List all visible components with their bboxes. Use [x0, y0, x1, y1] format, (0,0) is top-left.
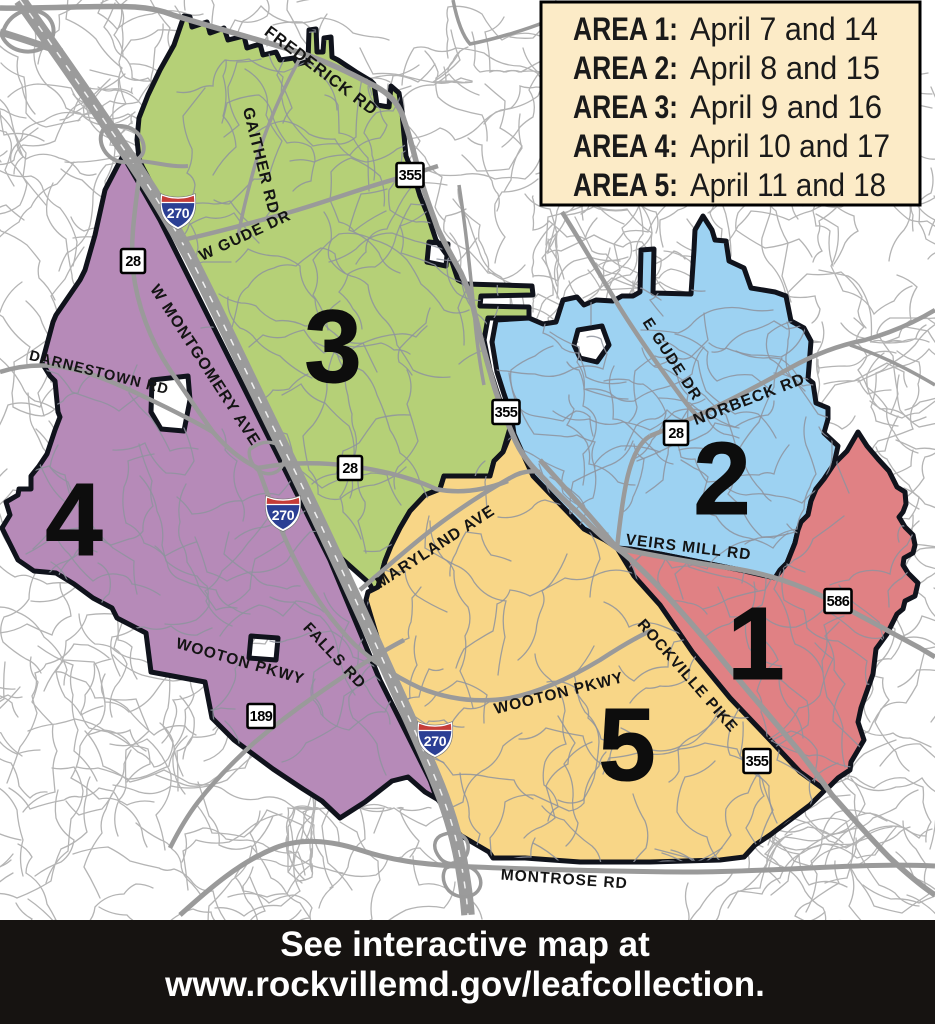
svg-text:270: 270: [272, 507, 295, 523]
svg-text:189: 189: [250, 709, 273, 725]
svg-text:See interactive map at: See interactive map at: [280, 925, 650, 964]
svg-text:www.rockvillemd.gov/leafcollec: www.rockvillemd.gov/leafcollection.: [164, 965, 765, 1004]
svg-text:270: 270: [424, 733, 447, 749]
svg-text:AREA 4:: AREA 4:: [573, 128, 678, 164]
svg-text:3: 3: [304, 289, 361, 404]
svg-text:AREA 3:: AREA 3:: [573, 89, 678, 125]
svg-text:28: 28: [125, 254, 141, 270]
svg-text:AREA 1:: AREA 1:: [573, 11, 678, 47]
svg-text:April 10 and 17: April 10 and 17: [690, 128, 890, 164]
svg-text:1: 1: [727, 586, 784, 701]
svg-text:AREA 5:: AREA 5:: [573, 167, 678, 203]
svg-text:28: 28: [342, 461, 358, 477]
svg-text:586: 586: [827, 594, 850, 610]
svg-text:April 8 and 15: April 8 and 15: [690, 50, 880, 86]
svg-text:AREA 2:: AREA 2:: [573, 50, 678, 86]
svg-text:4: 4: [45, 462, 102, 577]
svg-text:355: 355: [495, 405, 518, 421]
svg-text:April 11 and 18: April 11 and 18: [690, 167, 886, 203]
svg-text:April 7 and 14: April 7 and 14: [690, 11, 878, 47]
svg-text:355: 355: [399, 168, 422, 184]
svg-text:April 9 and 16: April 9 and 16: [690, 89, 882, 125]
svg-text:5: 5: [598, 687, 655, 802]
svg-text:28: 28: [668, 426, 684, 442]
svg-text:2: 2: [693, 421, 750, 536]
svg-text:270: 270: [167, 205, 190, 221]
svg-text:355: 355: [746, 754, 769, 770]
